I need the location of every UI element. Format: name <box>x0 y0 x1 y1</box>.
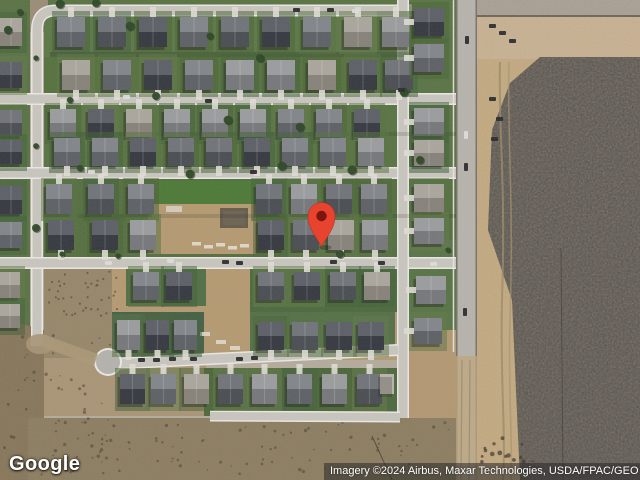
map-canvas[interactable]: Google Imagery ©2024 Airbus, Maxar Techn… <box>0 0 640 480</box>
google-logo[interactable]: Google <box>9 453 80 476</box>
attribution-text: Imagery ©2024 Airbus, Maxar Technologies… <box>330 465 639 477</box>
attribution-bar: Imagery ©2024 Airbus, Maxar Technologies… <box>324 463 640 480</box>
satellite-imagery <box>0 0 640 480</box>
